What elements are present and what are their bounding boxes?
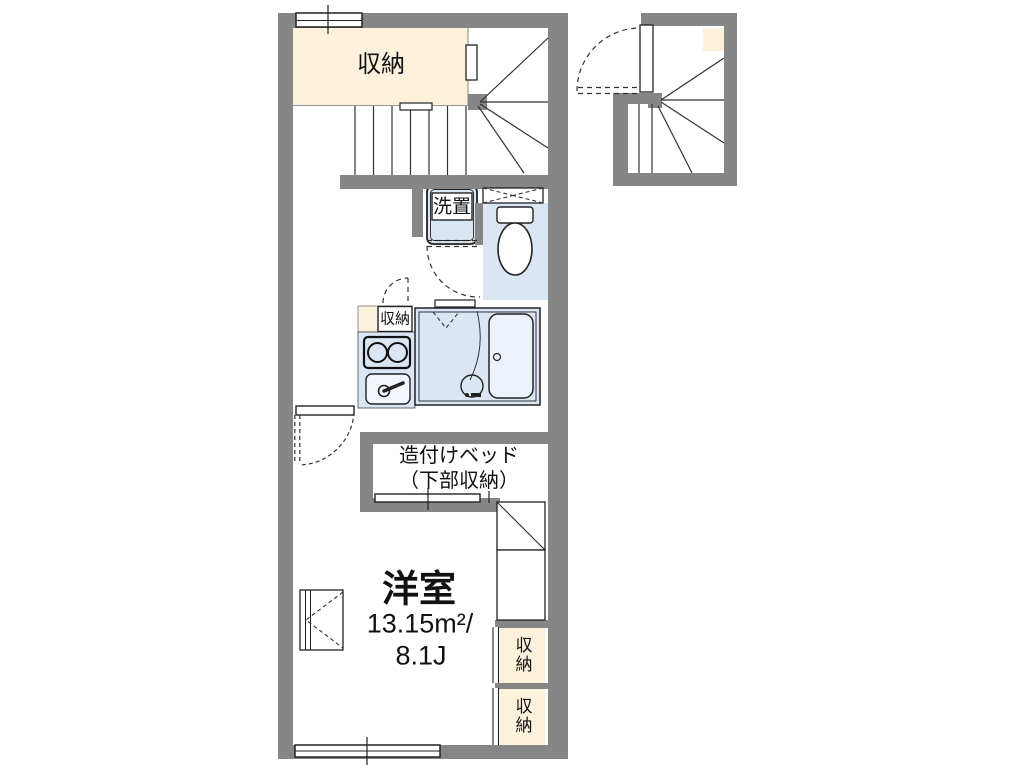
label-room-name: 洋室 (382, 571, 456, 608)
bathtub-icon (489, 314, 533, 398)
open-space-box (497, 550, 545, 620)
label-bed-line2: （下部収納） (399, 471, 519, 491)
door-storage-stairs (466, 45, 477, 80)
label-room-area-jo: 8.1J (395, 643, 446, 670)
room-side-window (300, 590, 343, 650)
bathroom-entry-bar (435, 300, 475, 307)
label-storage-right-upper: 収納 (514, 636, 531, 674)
floor-plan: 収納 洗置 収納 造付けベッド （下部収納） 洋室 13.15m²/ 8.1J … (0, 0, 1017, 772)
toilet-tank-icon (497, 207, 533, 223)
label-storage-right-lower: 収納 (514, 697, 531, 735)
stair-rail-bar (400, 103, 432, 110)
floor-plan-drawing (0, 0, 1017, 772)
toilet-bowl-icon (498, 223, 532, 275)
label-bed-line1: 造付けベッド (399, 446, 519, 466)
annex-shaft (703, 28, 724, 51)
annex-entry-door-leaf (640, 25, 653, 92)
room-door-leaf (296, 406, 354, 415)
label-storage-top: 収納 (357, 53, 405, 77)
room-door-swing (295, 412, 354, 465)
annex-entry-door-swing (577, 28, 640, 94)
label-washer: 洗置 (433, 198, 471, 217)
small-closet-door (383, 278, 408, 303)
toilet-door (427, 241, 480, 298)
label-storage-small: 収納 (380, 312, 410, 327)
label-room-area-m2: 13.15m²/ (367, 611, 474, 638)
